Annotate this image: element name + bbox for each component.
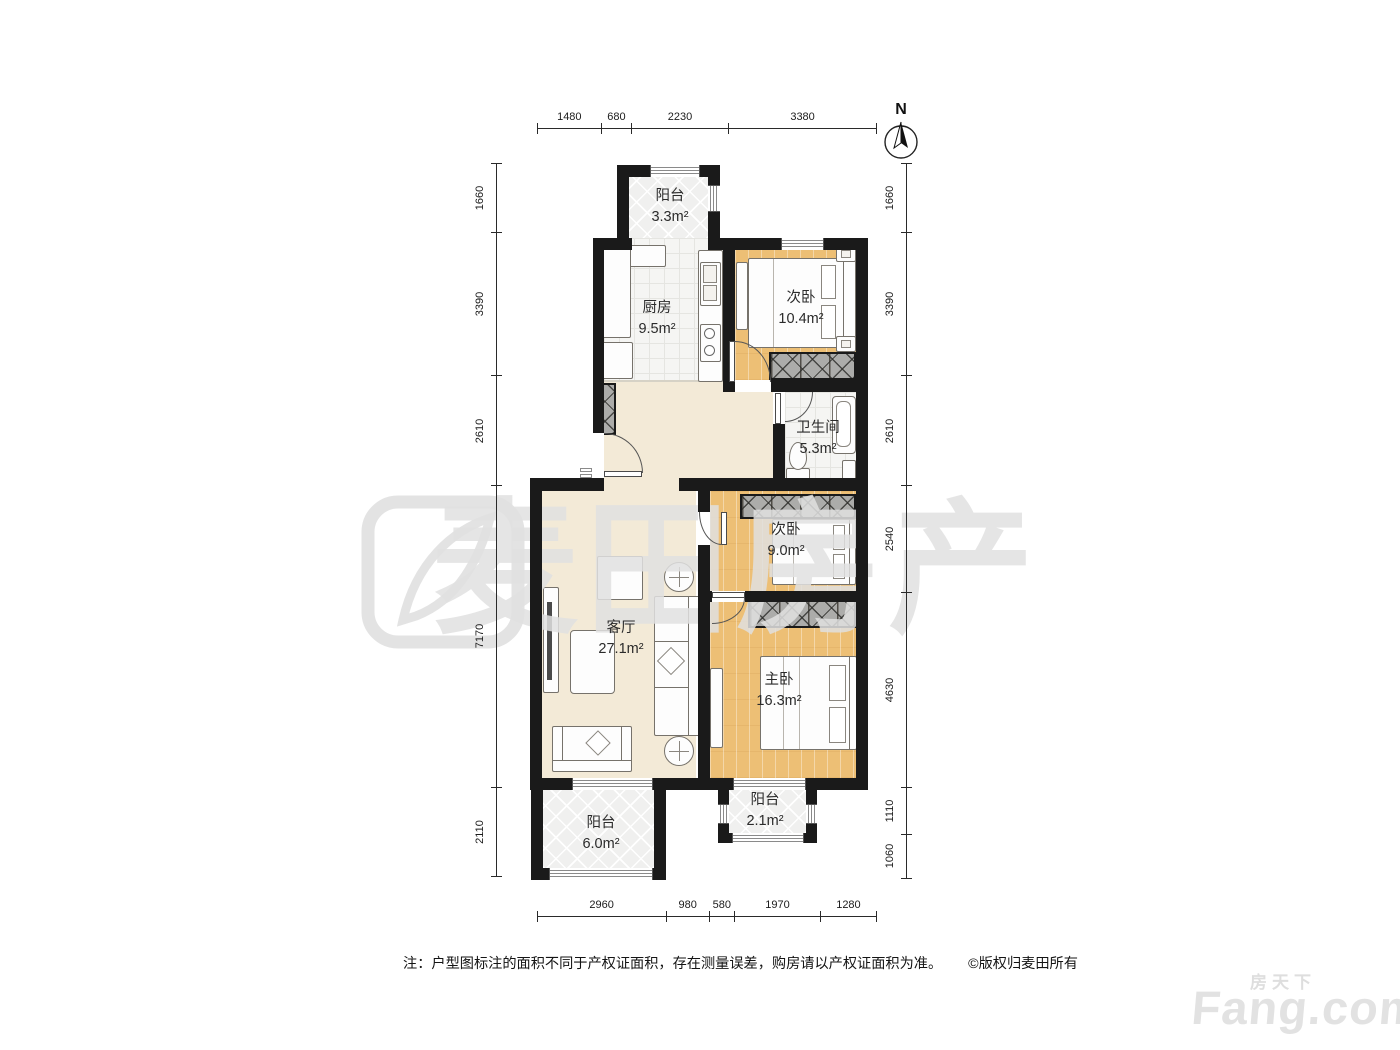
annotation-layer: N 注：户型图标注的面积不同于产权证面积，存在测量误差，购房请以产权证面积为准。… [0, 0, 1400, 1050]
disclaimer-note: 注：户型图标注的面积不同于产权证面积，存在测量误差，购房请以产权证面积为准。 ©… [403, 953, 1078, 973]
note-text: 注：户型图标注的面积不同于产权证面积，存在测量误差，购房请以产权证面积为准。 [403, 953, 942, 973]
fang-logo: 房天下 Fang.com [1192, 968, 1397, 1043]
north-compass: N [878, 98, 924, 168]
north-label: N [895, 101, 907, 118]
floorplan-page: 麦田房产 [0, 0, 1400, 1050]
copyright-text: ©版权归麦田所有 [968, 953, 1078, 973]
fang-logo-en: Fang.com [1190, 980, 1400, 1035]
